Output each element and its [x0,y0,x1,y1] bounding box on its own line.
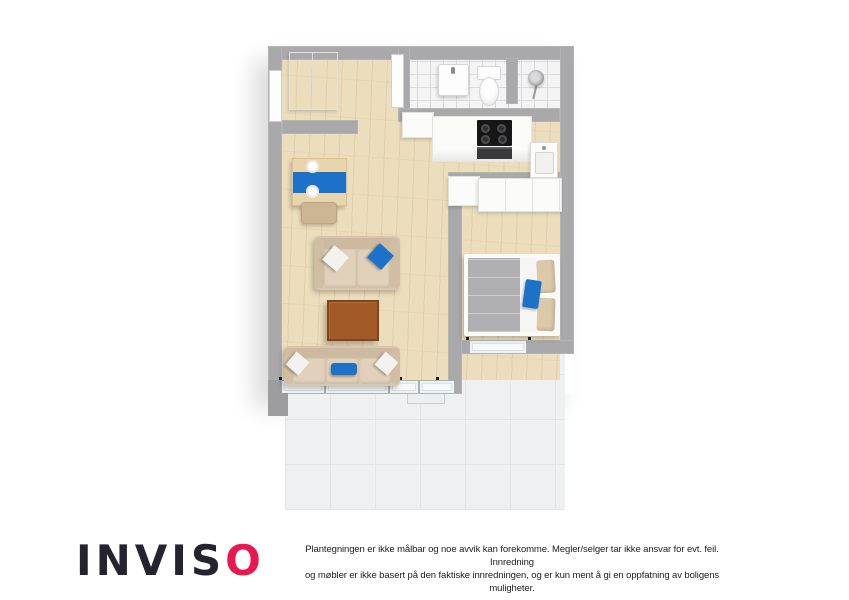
logo-text: INVIS [76,536,225,585]
entry-door [269,70,282,122]
loveseat-sofa [314,236,400,290]
window-pane [420,381,454,393]
faucet-icon [451,67,455,74]
double-bed [464,254,560,336]
burner-icon [498,135,507,144]
bed-pillow [536,298,555,332]
bedroom-wardrobe [478,178,562,212]
oven [477,147,512,159]
toilet-bowl [479,77,499,106]
wall-hall-divider [282,120,358,134]
frame-marker-dot [436,377,439,380]
disclaimer-line-1: Plantegningen er ikke målbar og noe avvi… [288,543,736,569]
page: INVISO Plantegningen er ikke målbar og n… [0,0,849,600]
three-seat-sofa [284,346,400,386]
plate-icon [306,160,319,173]
dining-table [292,158,347,206]
sofa-backrest [316,238,398,249]
blue-seat-cushion [331,363,357,375]
bedroom-cabinet [448,176,480,206]
hall-wardrobe [289,52,338,110]
bed-duvet [468,258,520,332]
sink-basin [535,152,554,174]
cooktop [477,120,512,146]
inviso-logo: INVISO [76,536,265,585]
disclaimer-text: Plantegningen er ikke målbar og noe avvi… [288,543,736,595]
sofa-armrest [314,239,324,288]
bathroom-door [391,54,404,108]
burner-icon [481,135,490,144]
kitchen-cabinet [402,112,434,138]
kitchen-sink [530,142,558,178]
wall-right [560,46,574,354]
logo-accent-letter: O [225,536,265,585]
coffee-table [327,300,379,341]
bathroom-sink [438,64,469,96]
dining-chair [301,202,337,224]
burner-icon [481,124,490,133]
faucet-icon [542,146,546,150]
table-runner [293,172,346,193]
plate-icon [306,185,319,198]
disclaimer-line-2: og møbler er ikke basert på den faktiske… [288,569,736,595]
burner-icon [497,124,506,133]
floorplan [268,32,574,510]
bedroom-window [470,341,526,353]
wall-shower-divider [506,58,518,104]
frame-marker-dot [528,337,531,340]
frame-marker-dot [466,337,469,340]
frame-marker-dot [279,377,282,380]
sofa-armrest [390,239,400,288]
shower-head [528,70,544,86]
